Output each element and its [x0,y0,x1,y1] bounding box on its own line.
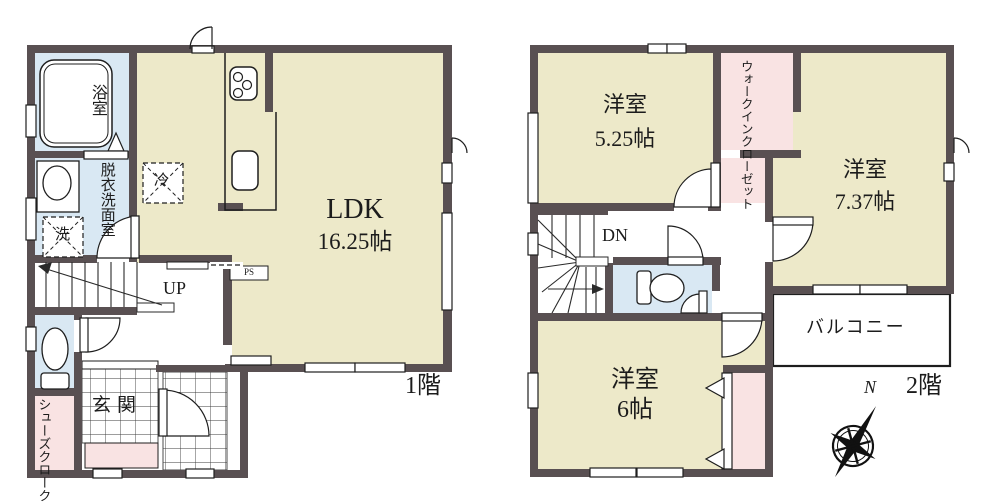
stairs-floor2 [538,215,608,313]
kitchen-sink [232,151,258,190]
ldk-label: LDK [315,195,395,224]
floor-plan-page: 浴室 脱衣洗面室 LDK 16.25帖 UP PS 玄関 シューズクローク 1階… [0,0,1000,504]
genkan-label: 玄関 [92,396,142,416]
genkan-cabinet [85,443,158,468]
bath-label: 浴室 [87,84,106,116]
shoe-closet-label: シューズクローク [36,398,51,468]
washroom-label: 脱衣洗面室 [97,162,115,237]
room737-size-label: 7.37帖 [815,190,915,213]
floor2-label: 2階 [906,374,942,399]
room525-label: 洋室 [585,93,665,116]
floor-plan-graphic [0,0,1000,504]
room525-size-label: 5.25帖 [575,127,675,150]
room6-label: 洋室 [595,368,675,393]
pipe-space-label: PS [230,268,268,277]
ldk-size-label: 16.25帖 [300,230,410,254]
walk-in-closet-label: ウォークインクローゼット [738,60,753,148]
fridge-label: 冷 [154,174,169,190]
laundry-label: 洗 [55,228,70,244]
stairs-dn-label: DN [602,226,628,245]
room6-size-label: 6帖 [595,398,675,423]
floor1-label: 1階 [405,374,441,399]
stairs-up-label: UP [163,279,186,298]
compass-icon [812,393,898,490]
compass-north-label: N [864,378,876,397]
stairs-floor1 [38,262,174,312]
room737-label: 洋室 [825,158,905,181]
balcony-label: バルコニー [806,318,906,337]
genkan-step [82,361,158,369]
